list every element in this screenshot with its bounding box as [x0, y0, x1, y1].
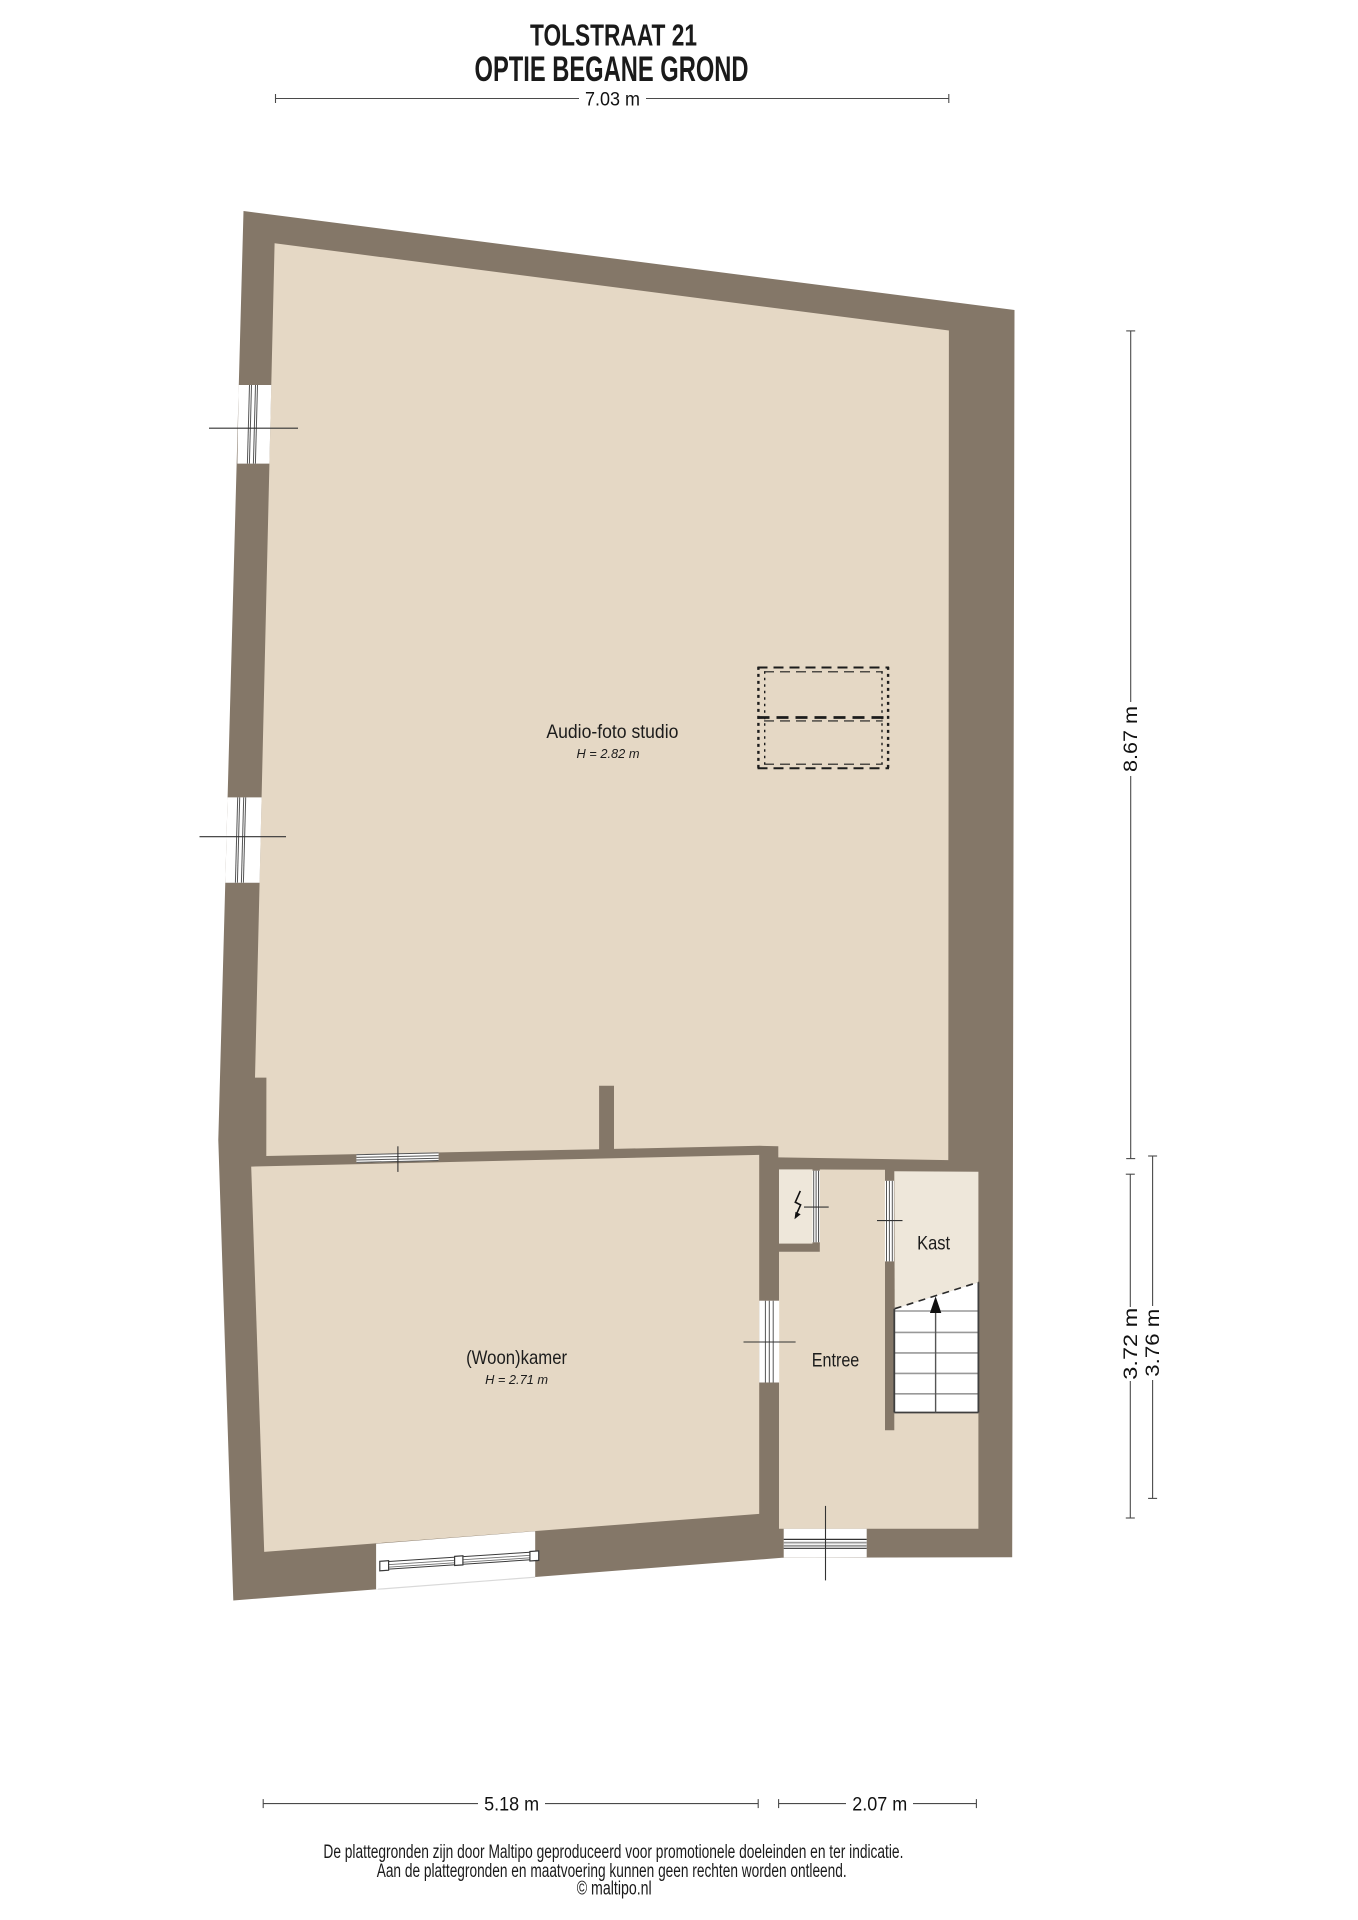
svg-text:7.03 m: 7.03 m: [585, 89, 640, 110]
svg-text:Audio-foto studio: Audio-foto studio: [546, 721, 678, 743]
svg-text:5.18 m: 5.18 m: [484, 1794, 539, 1815]
svg-text:Entree: Entree: [812, 1350, 860, 1372]
svg-text:H = 2.82 m: H = 2.82 m: [577, 746, 640, 761]
svg-text:3.72 m: 3.72 m: [1121, 1308, 1142, 1380]
svg-text:Kast: Kast: [917, 1233, 950, 1255]
svg-text:8.67 m: 8.67 m: [1121, 706, 1142, 772]
svg-text:TOLSTRAAT 21: TOLSTRAAT 21: [530, 17, 697, 52]
svg-text:H = 2.71 m: H = 2.71 m: [485, 1372, 548, 1387]
svg-text:2.07 m: 2.07 m: [852, 1794, 907, 1815]
svg-text:3.76 m: 3.76 m: [1143, 1309, 1164, 1377]
svg-text:© maltipo.nl: © maltipo.nl: [577, 1878, 652, 1899]
svg-text:(Woon)kamer: (Woon)kamer: [466, 1347, 567, 1369]
svg-text:OPTIE BEGANE GROND: OPTIE BEGANE GROND: [475, 50, 749, 89]
